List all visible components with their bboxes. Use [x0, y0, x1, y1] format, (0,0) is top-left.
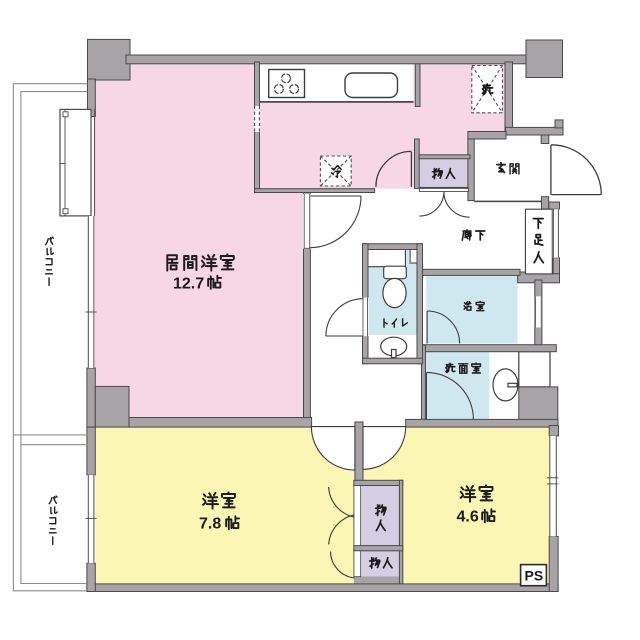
svg-text:12.7: 12.7	[173, 276, 204, 293]
svg-text:4.6: 4.6	[457, 509, 479, 526]
svg-text:PS: PS	[525, 568, 544, 584]
svg-text:7.8: 7.8	[199, 516, 221, 533]
